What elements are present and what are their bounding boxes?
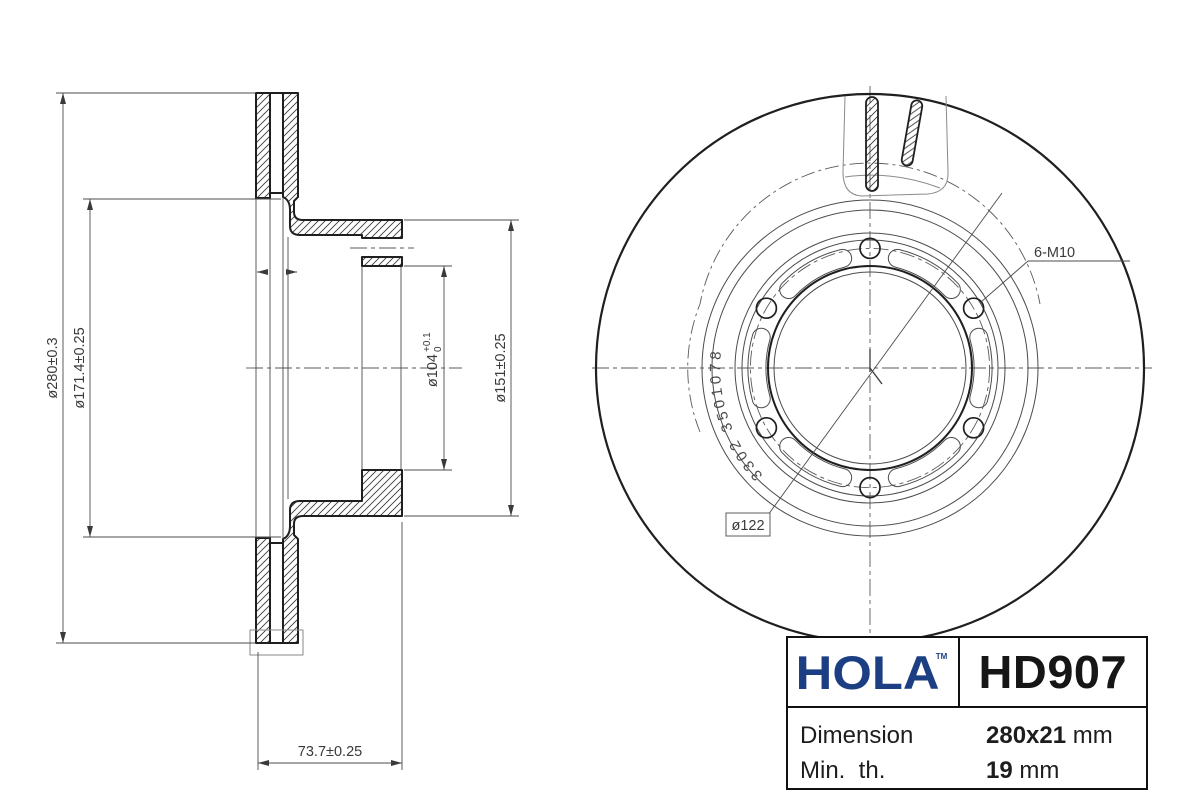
spec-label: Min. th.: [800, 757, 986, 785]
caliper-window-outline: [843, 96, 948, 196]
spec-row-dimension: Dimension 280x21 mm: [800, 718, 1146, 753]
dim-label-friction-diameter: ø171.4±0.25: [72, 327, 88, 408]
dim-label-bore-diameter: ø104 +0.1 0: [422, 332, 444, 387]
section-view: ø280±0.3 ø171.4±0.25 ø104 +0.1 0 ø151±0.…: [45, 93, 519, 770]
pcd-callout: ø122: [726, 513, 770, 536]
vent-slot: [901, 100, 923, 167]
caliper-window: [843, 96, 948, 196]
bolt-spec-label: 6-M10: [1034, 245, 1075, 261]
brand-cell: HOLATM: [788, 638, 960, 706]
dim-label-outer-diameter: ø280±0.3: [45, 337, 61, 398]
part-number: HD907: [979, 649, 1128, 695]
cast-marking: 3302 3501078: [707, 258, 766, 484]
vent-channel-hidden-arc: [688, 163, 1040, 432]
spec-row-min-thickness: Min. th. 19 mm: [800, 753, 1146, 788]
dim-label-flange-diameter: ø151±0.25: [493, 333, 509, 402]
vent-inner-arc: [845, 175, 940, 188]
svg-text:3302 3501078: 3302 3501078: [707, 347, 766, 484]
front-view: 6-M10 ø122 3302 3501078: [592, 86, 1152, 652]
trademark-symbol: TM: [936, 652, 948, 661]
svg-text:0: 0: [433, 346, 444, 352]
dim-label-overall-width: 73.7±0.25: [298, 744, 362, 760]
title-block-spec-rows: Dimension 280x21 mm Min. th. 19 mm: [788, 708, 1146, 788]
bolt-hole: [756, 418, 776, 438]
bolt-spec-callout: 6-M10: [981, 245, 1130, 302]
brand-logo: HOLA: [795, 649, 939, 696]
drawing-sheet: ø280±0.3 ø171.4±0.25 ø104 +0.1 0 ø151±0.…: [0, 0, 1200, 800]
svg-text:ø280±0.3: ø280±0.3: [45, 337, 61, 398]
title-block: HOLATM HD907 Dimension 280x21 mm Min. th…: [786, 636, 1148, 790]
svg-text:ø151±0.25: ø151±0.25: [493, 333, 509, 402]
svg-text:+0.1: +0.1: [422, 332, 433, 352]
spec-label: Dimension: [800, 722, 986, 750]
spec-value: 280x21 mm: [986, 722, 1113, 750]
title-block-header-row: HOLATM HD907: [788, 638, 1146, 708]
pcd-label: ø122: [731, 518, 764, 534]
vent-slot: [866, 97, 878, 191]
cast-marking-text: 3302 3501078: [707, 347, 766, 484]
spec-value: 19 mm: [986, 757, 1059, 785]
svg-text:ø171.4±0.25: ø171.4±0.25: [72, 327, 88, 408]
part-number-cell: HD907: [960, 638, 1146, 706]
svg-text:ø104: ø104: [425, 354, 441, 387]
